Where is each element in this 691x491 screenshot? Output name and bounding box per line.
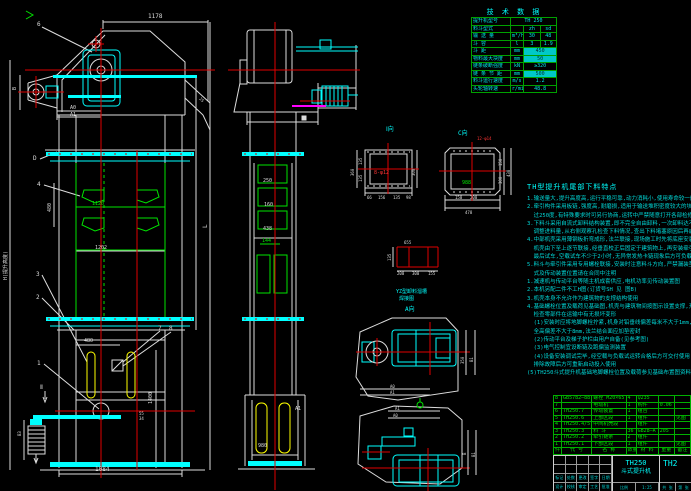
bom-table: 8GB5782—88螺栓 M20×654Q235 7电动机1购件0.06 6TH… [553,395,691,455]
weld-symbol-icon [26,11,33,19]
note-line: 5.料斗与牵引件采用专用螺栓联接,安装时注意料斗方向,严禁漏装垫圈 订货时如需改… [527,261,691,269]
note-line: 2.本机另配二件不工H图(订货号SH 见 图B) [527,286,691,294]
dim-a1-mid: A1 [295,406,301,412]
table-row: 链条破断强度kN≥320 [472,63,557,71]
sheet-number-label: 第 张 [676,483,691,491]
holes-note-i: 8-φ12 [374,170,389,176]
title-block: 标记 处数 更改文件号 签字 日期 设计 校核 审定 工艺 批准 TH250 斗… [553,455,691,491]
dim-155-grid: 155 [428,271,436,276]
bom-header: 材 料 [636,448,658,455]
part-label-7: 7 [158,325,162,332]
dim-135-grid: 135 [387,253,392,261]
part-label-2: 2 [36,294,40,301]
bom-header: 重量 [658,448,674,455]
plan-head [356,318,475,400]
tech-value: TH 250 [510,18,556,26]
note-line: 4.基础螺栓位置及载荷见基础图,机壳与建筑物间按图示设置支撑,开箱后请核对装箱单… [527,303,691,311]
tech-value: 30 [524,33,540,41]
tech-data-table: 技 术 数 据 提升机型号TH 250 料斗型式zhsd 输 送 量m³/h30… [471,8,557,93]
grid-caption-1: YZ型卸料溜槽 [396,288,427,295]
mid-view-cyan-bands [242,152,304,466]
tech-value: 1.2 [524,78,557,86]
rev-label: 校核 [566,483,578,491]
rev-label: 工艺 [589,483,601,491]
tech-unit: mm [510,70,523,78]
drawing-title: 斗式提升机 [613,468,659,476]
revision-row: 设计 校核 审定 工艺 批准 [554,483,612,491]
tech-unit: r/min [510,85,523,93]
drawing-number: TH2 [660,456,691,482]
title-block-center: TH250 斗式提升机 比例 1:25 [613,456,660,491]
tech-value: 50 [524,55,557,63]
rev-label: 设计 [554,483,566,491]
note-line: (5)TH250斗式提升机基础地脚螺栓位置及载荷参见基础布置图资料. [527,369,691,377]
bom-header: 数量 [626,448,636,455]
revision-row [554,465,612,474]
dim-350: 350 [460,356,465,364]
dim-1178: 1178 [148,13,163,20]
tech-unit [510,25,523,33]
dim-b: B [12,87,18,90]
tech-label: 链 条 节 距 [472,70,511,78]
tech-value: 500 [524,70,557,78]
dim-a0-head: A0 [390,384,395,389]
dim-360: 360 [350,168,355,176]
scale-label: 比例 [613,483,636,491]
revision-row [554,456,612,465]
dim-135a: 135 [358,157,363,165]
dim-a0: A0 [70,105,76,111]
dim-b1-head: B1 [469,357,474,362]
note-line: 调整进料量,从右侧观察孔检查下料情况,查出下料堵塞原因后再启动 [527,228,691,236]
dim-1202: 1202 [95,245,107,251]
bom-header: 名 称 [592,448,626,455]
rev-label: 处数 [566,474,578,482]
dim-160: 160 [264,202,273,208]
note-line: 3.下料斗采用自流式卸料结构装置,即不完全自由卸料,一次卸料达不到标准时,方可 [527,220,691,228]
note-line: 机壳由下至上逐节联接,经垂直校正后固定于建筑物上,再安装牵引件及料斗,调整链条张… [527,245,691,253]
dim-l: L [202,224,209,228]
tech-unit: l [510,40,523,48]
bom-code: GB5782—88 [562,396,592,403]
note-line: 1.减速机与传动平台等随主机成套供应,电机功率见传动装置图 [527,278,691,286]
section-ii-label: Ⅱ [40,384,43,391]
rev-label: 签字 [589,474,601,482]
note-line: 3.机壳本身不允许作为建筑物的支撑结构使用 [527,295,691,303]
note-line: (4)设备安装调试完毕,经空载与负载试运转合格后方可交付使用,运转中如有异响应立… [527,353,691,361]
dim-98: 98 [406,195,411,200]
cad-drawing-canvas: 1178 6 B A0 A1 25 D 4 480 1120 1202 3 2 … [0,0,691,491]
rev-label: 批准 [600,483,612,491]
note-line: (3)电气控制宜设断链及跑偏监测装置 [527,344,691,352]
tech-label: 料斗运行速度 [472,78,511,86]
notes-title: TH型提升机尾部下料特点 [527,182,691,192]
tech-label: 料斗型式 [472,25,511,33]
notes-block: TH型提升机尾部下料特点 1.输送量大,提升高度高,运行平稳可靠,动力消耗小,使… [527,182,691,394]
dim-a1-head: A1 [390,390,395,395]
revision-row: 标记 处数 更改文件号 签字 日期 [554,474,612,483]
tech-unit: kN [510,63,523,71]
part-label-3: 3 [36,271,40,278]
rev-label: 审定 [577,483,589,491]
bom-header-row: 件号代 号名 称数量材 料重量备注 [554,448,691,455]
left-view-cyan-lines [46,50,190,326]
bom-code: TH250.4/5 [562,422,592,429]
sheet-total-label: 共 张 [660,483,676,491]
table-row: 斗 容l31.9 [472,40,557,48]
tech-label: 斗 容 [472,40,511,48]
view-label-a: A向 [405,305,415,313]
dim-a0-boot: A0 [393,413,398,418]
plan-boot [358,398,476,491]
dim-1400: 1400 [148,392,154,404]
holes-note-c: 12-φ14 [477,136,492,141]
dim-66: 66 [367,195,372,200]
bom-name: 螺栓 M20×65 [592,396,626,403]
dim-478: 478 [465,210,473,215]
part-label-1: 1 [37,360,41,367]
tech-label: 斗 距 [472,48,511,56]
note-line: (2)传动平台及梯子护栏由用户自备(见参考图) [527,336,691,344]
table-row: 提升机型号TH 250 [472,18,557,26]
tech-unit: mm [510,55,523,63]
dim-144: 144 [262,238,271,244]
rev-label: 标记 [554,474,566,482]
revision-grid: 标记 处数 更改文件号 签字 日期 设计 校核 审定 工艺 批准 [554,456,613,491]
table-row: 料斗运行速度m/s1.2 [472,78,557,86]
dim-25: 25 [198,96,205,103]
tech-label: 链条破断强度 [472,63,511,71]
dim-655: 655 [404,240,412,245]
tech-value: 48 [540,33,556,41]
note-line: (1)安装时应将地脚螺栓拧紧,机身对铅垂线偏差每米不大于1mm, [527,319,691,327]
rev-label: 更改文件号 [577,474,589,482]
note-line: 排除故障后方可重新启动投入使用 [527,361,691,369]
note-line: 4.中部机壳采用薄钢板折弯成形,法兰联接,现场施工时先将底座安装在基础上,找正找… [527,236,691,244]
dim-h: H(提升高度) [2,251,9,280]
part-label-8: 8 [169,325,173,332]
dim-135b: 135 [358,174,363,182]
bom-header: 件号 [554,448,562,455]
dim-34: 34 [139,416,144,421]
table-row: 斗 距mm450 [472,48,557,56]
dim-438-r: 438 [506,169,511,177]
note-line: 过250度,有特殊要求时可另行协商,运转中严禁随意打开各部检修门 [527,212,691,220]
bom-header: 备注 [674,448,690,455]
dim-b3: B3 [17,431,22,436]
dimension-labels: 1178 6 B A0 A1 25 D 4 480 1120 1202 3 2 … [2,13,511,473]
dim-250: 250 [263,178,272,184]
dim-980: 980 [258,443,267,449]
table-row: 头轮轴转速r/min48.8 [472,85,557,93]
grid-caption-2: 焊接图 [399,295,414,302]
dim-150-b: 150 [455,195,463,200]
bom-header: 代 号 [562,448,592,455]
tech-value: zh [524,25,540,33]
tech-unit: m³/h [510,33,523,41]
bom-mat: GB28—A [636,428,658,435]
drawing-model: TH250 [613,459,659,468]
part-label-4: 4 [37,181,41,188]
dim-300-r: 300 [498,176,503,184]
left-view-green-casing [76,163,165,317]
dim-150-r: 150 [498,158,503,166]
tech-label: 头轮轴转速 [472,85,511,93]
tech-unit: m/s [510,78,523,86]
dim-988: 988 [462,180,471,186]
dim-438: 438 [263,226,272,232]
part-label-6: 6 [37,21,41,28]
table-row: 链 条 节 距mm500 [472,70,557,78]
scale-value: 1:25 [636,483,659,491]
tech-value: 3 [524,40,540,48]
title-block-right: TH2 共 张 第 张 [660,456,691,491]
tech-unit: mm [510,48,523,56]
tech-label: 提升机型号 [472,18,511,26]
tech-value: 1.9 [540,40,556,48]
tech-table-title: 技 术 数 据 [471,8,557,17]
dim-200-grid: 200 [397,271,405,276]
dim-a1: A1 [70,112,76,118]
dim-1120: 1120 [92,201,104,207]
label-d: D [33,155,37,162]
left-view-chain-links [87,352,135,398]
dim-156: 156 [378,195,386,200]
note-line: 式及传动装置位置请在合同中注明 [527,270,691,278]
note-line: 检查零部件在运输中有无损坏变形 [527,311,691,319]
dim-200-b: 200 [470,195,478,200]
table-row: 物料最大块度mm50 [472,55,557,63]
left-view-linework [10,20,210,477]
mid-view-centerlines [228,22,360,490]
dim-a1-boot: A1 [395,406,400,411]
tech-value: ≥320 [524,63,557,71]
dim-1084: 1084 [95,466,110,473]
grid-detail [393,247,438,271]
view-label-i: Ⅰ向 [386,125,394,133]
mid-view-drive [296,40,358,106]
dim-b1-boot: B1 [471,452,476,457]
dim-480-boot: 480 [84,338,93,344]
tech-value: 450 [524,48,557,56]
dim-300-i: 300 [411,168,416,176]
detail-c [439,142,511,211]
dim-b-boot: B [462,452,467,455]
table-row: 输 送 量m³/h3048 [472,33,557,41]
note-line: 全高偏差不大于8mm,法兰结合面应加垫密封 [527,328,691,336]
dim-300-grid: 300 [412,271,420,276]
table-row: 料斗型式zhsd [472,25,557,33]
dim-480-mid: 480 [47,203,53,212]
note-line: 2.牵引构件采用板链,强度高,耐磨损,适用于输送堆积密度较大的块状粒状物料,物料… [527,203,691,211]
left-view-cyan-bands [30,75,197,467]
rev-label: 日期 [600,474,612,482]
tech-value: sd [540,25,556,33]
tech-value: 48.8 [524,85,557,93]
note-line: 1.输送量大,提升高度高,运行平稳可靠,动力消耗小,使用寿命较一般为长 [527,195,691,203]
tech-label: 物料最大块度 [472,55,511,63]
note-line: 最后试车,空载试车不少于2小时,无异常发热卡链现象后方可负载运转 [527,253,691,261]
view-label-c: C向 [458,129,468,137]
tech-label: 输 送 量 [472,33,511,41]
dim-135c: 135 [393,195,401,200]
